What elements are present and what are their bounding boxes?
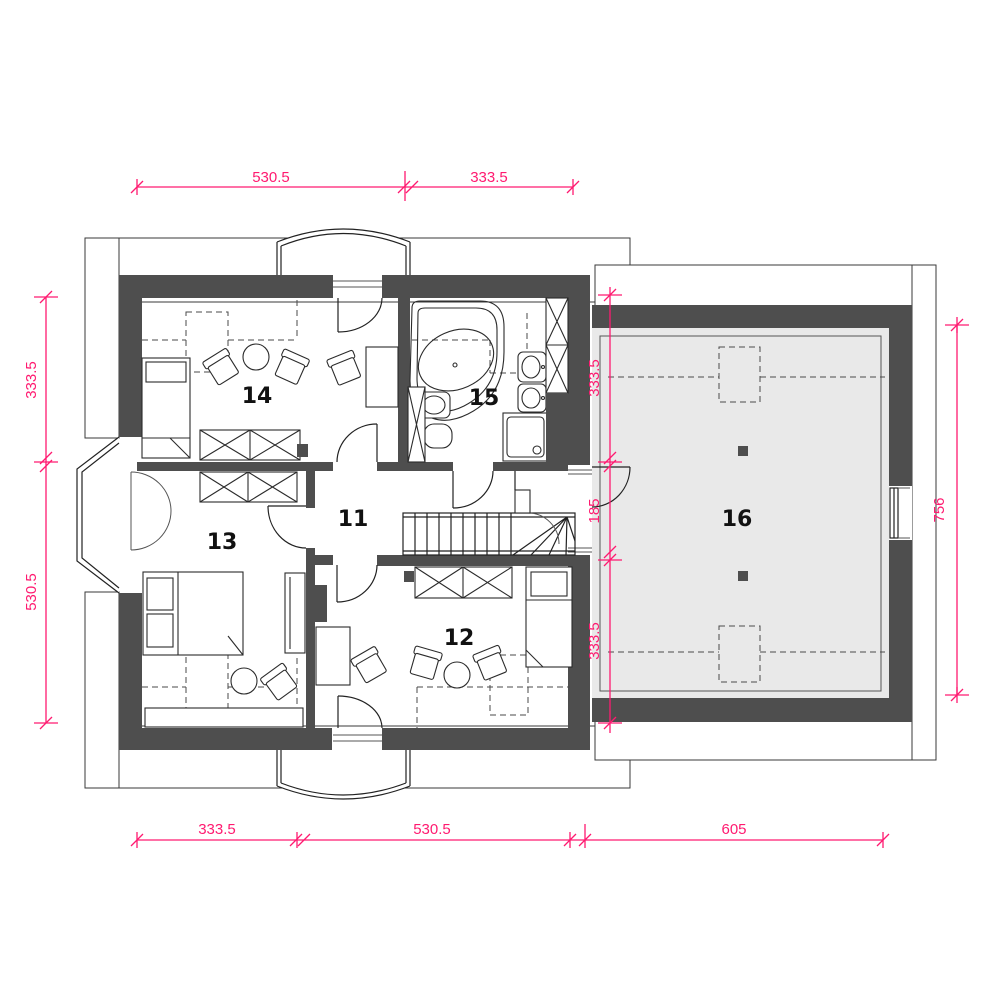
bathroom-cabinet [546, 298, 568, 462]
room-label-14: 14 [242, 384, 273, 409]
dim-left-1: 333.5 [23, 361, 40, 399]
dim-bottom-3: 605 [721, 821, 746, 838]
room-label-12: 12 [444, 626, 475, 651]
roof-post [738, 571, 748, 581]
stair-newel [515, 490, 530, 513]
roof-post [738, 446, 748, 456]
bed [526, 567, 572, 667]
dim-bottom-2: 530.5 [413, 821, 451, 838]
floor-plan-svg: 11 12 13 14 15 16 530.5 333.5 333.5 530.… [0, 0, 1000, 1000]
shower [503, 413, 548, 461]
wardrobe [200, 472, 297, 502]
dimension-left: 333.5 530.5 [23, 291, 58, 729]
round-table [231, 668, 257, 694]
round-table [243, 344, 269, 370]
chimney [315, 585, 327, 622]
floor-plan-page: 11 12 13 14 15 16 530.5 333.5 333.5 530.… [0, 0, 1000, 1000]
sink [518, 384, 546, 412]
room-15-fixtures [408, 298, 568, 462]
round-table [444, 662, 470, 688]
dim-left-2: 530.5 [23, 573, 40, 611]
sink [518, 352, 546, 382]
bathroom-cabinet [408, 387, 425, 462]
garage-window [889, 486, 912, 540]
double-bed [143, 572, 243, 655]
bed [142, 358, 190, 458]
armchair [202, 348, 241, 387]
armchair [273, 349, 310, 386]
room-label-11: 11 [338, 507, 369, 532]
door-room-13 [268, 506, 306, 548]
room-label-13: 13 [207, 530, 238, 555]
desk [366, 347, 398, 407]
door-room-14 [337, 424, 377, 462]
dimension-top: 530.5 333.5 [131, 169, 579, 201]
room-label-15: 15 [469, 386, 500, 411]
door-bathroom [453, 471, 493, 508]
dim-top-2: 333.5 [470, 169, 508, 186]
room-13-furniture [143, 472, 305, 727]
balcony-door-bottom [338, 696, 382, 728]
staircase [403, 471, 575, 555]
armchair [350, 646, 388, 684]
wardrobe [200, 430, 308, 460]
dim-middle-3: 333.5 [586, 622, 603, 660]
armchair [260, 663, 299, 702]
dimension-right: 756 [931, 317, 969, 703]
door-room-12 [337, 565, 377, 602]
dim-middle-1: 333.5 [586, 359, 603, 397]
room-label-16: 16 [722, 507, 753, 532]
dresser [145, 708, 303, 727]
armchair [472, 645, 508, 681]
armchair [326, 350, 362, 386]
armchair [408, 646, 443, 681]
dim-middle-2: 185 [586, 498, 603, 523]
wardrobe [404, 567, 512, 598]
dimension-bottom: 333.5 530.5 605 [131, 821, 889, 848]
dim-bottom-1: 333.5 [198, 821, 236, 838]
balcony-door-top [338, 298, 382, 332]
bay-window [77, 437, 171, 593]
dim-top-1: 530.5 [252, 169, 290, 186]
dim-right-1: 756 [931, 497, 948, 522]
side-unit [285, 573, 305, 653]
desk [316, 627, 350, 685]
